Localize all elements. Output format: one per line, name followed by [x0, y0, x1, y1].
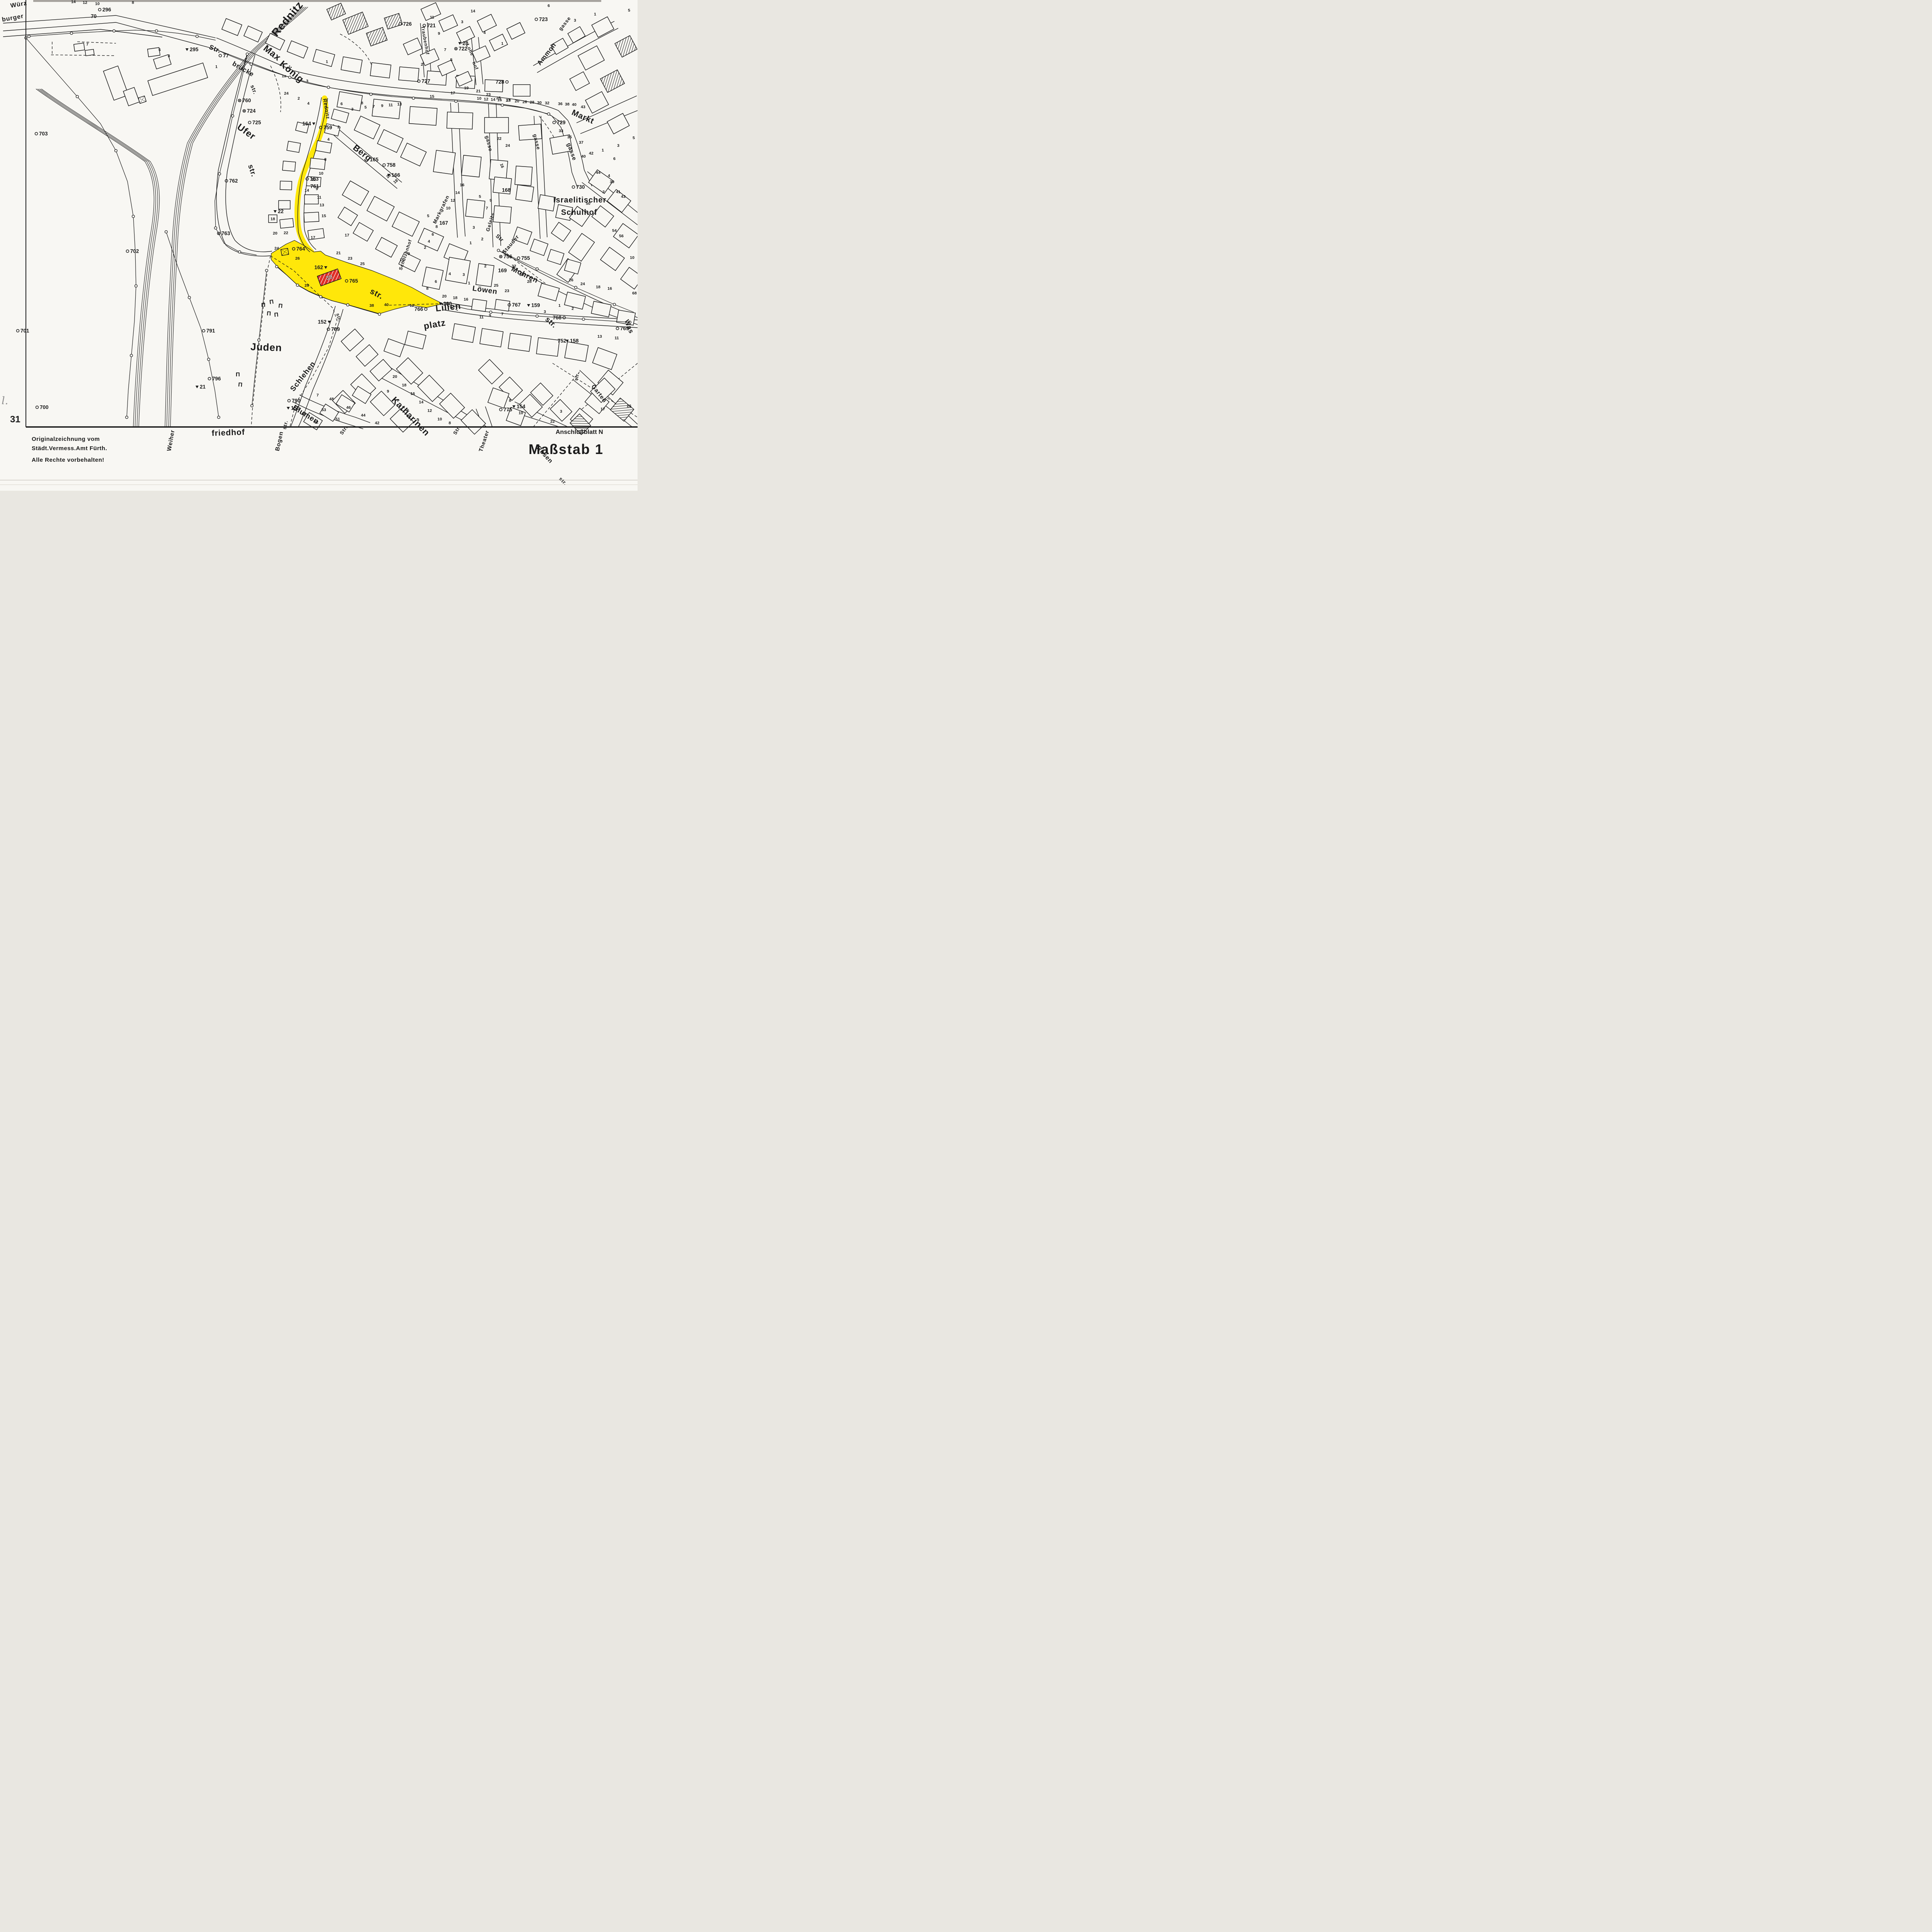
- house-number: 12: [410, 303, 414, 308]
- credit-line-1: Originalzeichnung vom: [32, 436, 100, 442]
- survey-chain-node: [28, 35, 31, 38]
- building-outline: [480, 328, 503, 347]
- house-number: 17: [451, 91, 455, 95]
- survey-point-label: 77: [223, 53, 229, 59]
- credit-line-2: Städt.Vermess.Amt Fürth.: [32, 445, 107, 452]
- survey-point-label: 166: [391, 172, 400, 178]
- survey-point-label: 164: [302, 121, 311, 127]
- house-number: 14: [455, 190, 460, 195]
- house-number: 5: [450, 58, 452, 62]
- building: [452, 324, 475, 343]
- survey-point-label: 775: [503, 407, 512, 413]
- building-outline: [466, 199, 485, 218]
- house-number: 42: [375, 421, 379, 425]
- building-outline: [471, 299, 487, 312]
- survey-chain-node: [238, 251, 241, 253]
- building-outline: [536, 338, 560, 356]
- house-number: 7: [372, 104, 375, 109]
- house-number: 16: [460, 183, 464, 187]
- survey-point-label: 721: [427, 23, 436, 29]
- building-outline: [461, 155, 481, 177]
- house-number: 3: [463, 272, 465, 277]
- building: [370, 63, 391, 78]
- house-number: 54: [612, 228, 617, 233]
- building: [538, 195, 556, 211]
- survey-point-label: 169: [498, 268, 507, 274]
- house-number: 68: [632, 291, 637, 296]
- house-number: 1: [602, 148, 604, 153]
- street-label: Schulhof: [561, 208, 597, 217]
- house-number: 10: [519, 411, 523, 415]
- building: [310, 158, 326, 170]
- survey-chain-node: [132, 215, 135, 218]
- survey-point-label: 728: [495, 79, 504, 85]
- house-number: 14: [304, 188, 309, 193]
- survey-chain-node: [207, 358, 210, 361]
- survey-point-label: 760: [242, 98, 251, 104]
- house-number: 19: [464, 86, 469, 90]
- house-number: 21: [336, 251, 341, 255]
- survey-chain-node: [548, 113, 550, 116]
- survey-point-label: 764: [296, 246, 305, 252]
- scan-edge-shadow: [33, 0, 601, 2]
- building-outline: [446, 257, 471, 284]
- survey-point-label: 152: [318, 319, 327, 325]
- survey-chain-node: [370, 93, 372, 96]
- building-outline: [515, 166, 532, 186]
- building: [279, 201, 290, 209]
- house-number: 13: [397, 102, 402, 107]
- house-number: 53: [321, 408, 326, 412]
- building: [287, 141, 301, 152]
- house-number: 23: [348, 256, 352, 261]
- survey-point-label: 21: [200, 384, 206, 390]
- house-number: 9: [438, 31, 440, 36]
- house-number: 2: [481, 237, 483, 241]
- house-number: 26: [569, 278, 573, 282]
- house-number: 3: [461, 20, 463, 24]
- house-number: 18: [402, 383, 406, 388]
- house-number: 38: [565, 102, 570, 107]
- house-number: 20: [442, 294, 447, 299]
- house-number: 1: [326, 60, 328, 64]
- survey-point-label: 730: [576, 184, 585, 190]
- house-number: 13: [320, 203, 324, 207]
- house-number: 5: [479, 194, 481, 199]
- house-number: 3: [574, 18, 576, 23]
- survey-point-label: 758: [387, 162, 396, 168]
- building: [74, 43, 85, 51]
- survey-chain-node: [455, 100, 457, 103]
- house-number: 44: [596, 170, 600, 175]
- house-number: 14: [71, 0, 76, 4]
- survey-point-label: 765: [349, 278, 358, 284]
- survey-point-label: 154: [517, 404, 526, 410]
- house-number: 10: [477, 96, 481, 101]
- house-number: 10: [319, 171, 323, 176]
- house-number: 5: [628, 8, 630, 13]
- survey-point-label: 295: [190, 47, 199, 53]
- survey-chain-node: [113, 30, 116, 32]
- house-number: 10: [630, 255, 634, 260]
- house-number: 1: [468, 281, 470, 286]
- survey-point-label: 796: [212, 376, 221, 382]
- house-number: 10: [446, 206, 451, 211]
- house-number: 9: [387, 389, 389, 394]
- house-number: 16: [607, 286, 612, 291]
- survey-point-label: 724: [247, 108, 256, 114]
- sheet-number: 31: [10, 414, 20, 425]
- house-number: 10: [95, 2, 100, 6]
- survey-point-label: 762: [229, 178, 238, 184]
- house-number: 7: [501, 312, 503, 316]
- house-number: 7: [444, 48, 446, 52]
- building: [461, 155, 481, 177]
- building-outline: [74, 43, 85, 51]
- survey-chain-node: [265, 269, 268, 272]
- survey-point-label: 752: [558, 338, 566, 344]
- building-outline: [508, 333, 531, 351]
- building: [536, 338, 560, 356]
- house-number: 3: [168, 54, 170, 58]
- scale-label: Maßstab 1: [529, 441, 604, 457]
- grave-icon: Π: [236, 371, 240, 378]
- street-label: Juden: [250, 341, 282, 354]
- house-number: 26: [522, 100, 527, 104]
- building: [516, 185, 534, 201]
- survey-chain-node: [126, 416, 128, 419]
- survey-point-label: 767: [512, 302, 521, 308]
- house-number: 24: [505, 143, 510, 148]
- building-outline: [304, 195, 318, 204]
- survey-chain-node: [536, 268, 539, 270]
- building-outline: [485, 117, 509, 133]
- house-number: 17: [311, 235, 315, 240]
- survey-chain-node: [214, 227, 217, 230]
- house-number: 7: [86, 42, 88, 47]
- house-number: 1: [594, 12, 596, 17]
- survey-chain-node: [155, 30, 158, 32]
- survey-chain-node: [70, 32, 73, 35]
- house-number: 44: [361, 413, 366, 418]
- building-outline: [447, 112, 473, 129]
- house-number: 9: [381, 104, 383, 108]
- page-edge-line: [0, 480, 638, 480]
- survey-point-label: 723: [539, 17, 548, 22]
- house-number: 5: [427, 214, 429, 218]
- survey-point-label: 159: [531, 303, 540, 308]
- house-number: 4: [449, 272, 451, 276]
- building: [466, 199, 485, 218]
- house-number: 9: [316, 187, 318, 191]
- house-number: 38: [369, 303, 374, 308]
- building-outline: [310, 158, 326, 170]
- house-number: 1: [469, 241, 472, 245]
- survey-point-label: 766: [414, 306, 423, 312]
- building-outline: [280, 181, 292, 190]
- building-outline: [280, 218, 294, 228]
- house-number: 3: [473, 225, 475, 230]
- building-outline: [85, 49, 94, 56]
- survey-chain-node: [613, 303, 616, 306]
- building-outline: [399, 67, 419, 82]
- house-number: 39: [610, 180, 614, 184]
- house-number: 20: [273, 231, 277, 236]
- house-number: 14: [419, 400, 423, 405]
- building-outline: [513, 85, 530, 96]
- house-number: 46: [346, 405, 351, 410]
- house-number: 3: [544, 310, 546, 314]
- survey-point-label: 727: [422, 78, 430, 84]
- survey-point-label: 158: [570, 338, 579, 344]
- building-outline: [372, 99, 401, 119]
- house-number: 11: [388, 103, 393, 107]
- house-number: 5: [633, 136, 635, 140]
- scanned-map-page: 30ΠΠΠΠΠΠΠ7007017027032967029577760724725…: [0, 0, 638, 491]
- building: [372, 99, 401, 119]
- survey-point-label: 763: [221, 231, 230, 236]
- house-number: 8: [509, 398, 511, 403]
- adjoining-sheet-label: Anschlußblatt N: [556, 429, 603, 436]
- house-number: 28: [304, 283, 309, 288]
- house-number: 5: [364, 105, 367, 110]
- building-outline: [308, 228, 325, 240]
- survey-point-label: 700: [40, 405, 49, 410]
- survey-point-label: 168: [502, 187, 511, 193]
- survey-point-label: 162: [314, 265, 323, 270]
- building: [513, 85, 530, 96]
- house-number: 56: [619, 234, 624, 238]
- building-outline: [304, 212, 319, 222]
- house-number: 11: [479, 315, 483, 320]
- map-canvas: 30ΠΠΠΠΠΠΠ7007017027032967029577760724725…: [0, 0, 638, 491]
- survey-chain-node: [196, 35, 199, 38]
- survey-point-label: 726: [403, 21, 412, 27]
- house-number: 3: [351, 107, 354, 112]
- survey-point-label: 789: [331, 327, 340, 332]
- survey-point-label: 22: [278, 209, 284, 214]
- survey-chain-node: [165, 231, 168, 233]
- building: [493, 206, 511, 223]
- house-number: 28: [530, 100, 534, 105]
- house-number: 24: [274, 246, 279, 251]
- house-number: 48: [329, 397, 334, 401]
- house-number: 8: [361, 101, 363, 105]
- house-number: 16: [410, 391, 415, 396]
- house-number: 12: [427, 408, 432, 413]
- house-number: 22: [284, 231, 288, 235]
- building-outline: [422, 267, 443, 289]
- house-number: 22: [550, 419, 555, 424]
- building-outline: [493, 206, 511, 223]
- building: [316, 141, 332, 153]
- house-number: 20: [393, 374, 397, 379]
- house-number: 16: [497, 98, 502, 102]
- house-number: 18: [270, 217, 275, 221]
- house-number: 12: [451, 198, 455, 203]
- house-number: 10: [437, 417, 442, 422]
- house-number: 6: [340, 102, 343, 106]
- building: [422, 267, 443, 289]
- house-number: 22: [497, 136, 502, 141]
- house-number: 20: [515, 99, 519, 104]
- survey-chain-node: [378, 313, 381, 316]
- survey-chain-node: [188, 296, 191, 299]
- house-number: 6: [435, 279, 437, 284]
- survey-chain-node: [575, 286, 577, 289]
- building: [304, 195, 318, 204]
- house-number: 4: [307, 101, 310, 106]
- house-number: 23: [486, 92, 491, 97]
- building: [409, 107, 437, 126]
- house-number: 8: [435, 224, 438, 229]
- house-number: 1a: [282, 74, 286, 78]
- house-number: 15: [430, 94, 434, 99]
- house-number: 11: [430, 15, 434, 20]
- house-number: 3: [560, 409, 562, 414]
- building: [304, 212, 319, 222]
- house-number: 16: [464, 297, 468, 302]
- credit-line-3: Alle Rechte vorbehalten!: [32, 457, 104, 463]
- house-number: 37: [579, 140, 583, 145]
- survey-chain-node: [246, 53, 249, 56]
- survey-chain-node: [497, 249, 500, 252]
- house-number: 2: [571, 306, 574, 311]
- building-outline: [538, 195, 556, 211]
- building-outline: [433, 150, 455, 174]
- house-number: 4: [327, 137, 330, 142]
- building-outline: [287, 141, 301, 152]
- building-outline: [409, 107, 437, 126]
- survey-chain-node: [320, 296, 322, 298]
- house-number: 5: [158, 48, 161, 52]
- survey-point-label: 703: [39, 131, 48, 137]
- house-number: 25: [360, 262, 365, 266]
- house-number: 1: [501, 41, 503, 46]
- building-outline: [370, 63, 391, 78]
- survey-chain-node: [536, 315, 539, 318]
- survey-chain-node: [218, 173, 221, 175]
- house-number: 8: [449, 421, 451, 425]
- survey-chain-node: [412, 97, 415, 100]
- house-number: 15: [321, 214, 326, 218]
- house-number: 11: [614, 336, 619, 340]
- house-number: 8: [324, 157, 327, 162]
- survey-chain-node: [251, 405, 253, 407]
- house-number: 41: [616, 190, 621, 194]
- survey-chain-node: [327, 86, 330, 89]
- house-number: 13: [597, 334, 602, 339]
- house-number: 24: [284, 91, 289, 96]
- house-number: 4: [428, 239, 430, 244]
- house-number: 1: [558, 303, 561, 308]
- house-number: 40: [384, 303, 389, 307]
- house-number: 2: [484, 264, 486, 269]
- building: [399, 67, 419, 82]
- building: [485, 117, 509, 133]
- house-number: 7: [486, 206, 488, 211]
- handwriting-note: l.: [2, 395, 8, 407]
- survey-chain-node: [130, 354, 133, 357]
- house-number: 23: [505, 289, 509, 293]
- house-number: 43: [581, 105, 585, 109]
- street-label: friedhof: [211, 428, 245, 438]
- grave-icon: Π: [238, 381, 243, 388]
- survey-chain-node: [218, 416, 220, 419]
- house-number: 8: [132, 0, 134, 5]
- house-number: 12: [83, 0, 87, 5]
- survey-point-label: 296: [102, 7, 111, 13]
- house-number: 2: [298, 96, 300, 101]
- house-number: 1: [215, 65, 218, 69]
- house-number: 6: [548, 3, 550, 8]
- house-number: 12: [311, 177, 316, 182]
- survey-point-label: 702: [130, 248, 139, 254]
- house-number: 12: [484, 97, 488, 102]
- survey-chain-node: [501, 104, 504, 107]
- house-number: 11: [317, 195, 321, 200]
- house-number: 4: [608, 173, 610, 178]
- survey-point-label: 790: [292, 398, 301, 404]
- building-outline: [282, 161, 296, 172]
- grave-icon: Π: [267, 310, 271, 317]
- house-number: 2: [421, 62, 423, 67]
- house-number: 32: [545, 101, 549, 105]
- house-number: 30: [537, 100, 542, 105]
- house-number: 4: [483, 31, 486, 35]
- survey-point-label: 759: [323, 125, 332, 131]
- house-number: 36: [558, 102, 563, 106]
- house-number: 2: [337, 125, 340, 129]
- house-number: 17: [600, 407, 605, 412]
- survey-point-label: 729: [557, 120, 566, 126]
- grave-icon: Π: [274, 311, 279, 318]
- house-number: 40: [572, 102, 577, 107]
- house-number: 9: [489, 313, 491, 318]
- house-number: 6: [432, 232, 434, 237]
- survey-point-label: 755: [521, 255, 530, 261]
- building: [446, 257, 471, 284]
- survey-chain-node: [250, 63, 253, 66]
- house-number: 14: [491, 97, 495, 102]
- building-outline: [279, 201, 290, 209]
- survey-chain-node: [582, 318, 585, 321]
- survey-chain-node: [347, 304, 349, 306]
- building: [480, 328, 503, 347]
- house-number: 3: [617, 143, 619, 148]
- page-edge-line-2: [0, 485, 638, 485]
- survey-chain-node: [276, 265, 278, 268]
- building: [282, 161, 296, 172]
- house-number: 35: [567, 135, 572, 139]
- house-number: 24: [580, 282, 585, 286]
- survey-point-label: 791: [206, 328, 215, 334]
- grave-icon: Π: [278, 303, 283, 310]
- survey-chain-node: [135, 285, 138, 287]
- building-outline: [516, 185, 534, 201]
- house-number: 18: [453, 296, 457, 300]
- house-number: 6: [613, 156, 616, 161]
- house-number: 33: [559, 129, 563, 133]
- building: [565, 342, 588, 362]
- survey-chain-node: [76, 95, 79, 98]
- house-number: 40: [581, 154, 586, 159]
- building: [85, 49, 94, 56]
- survey-point-label: 70: [91, 14, 97, 19]
- building: [280, 218, 294, 228]
- building: [471, 299, 487, 312]
- house-number: 18: [596, 285, 600, 289]
